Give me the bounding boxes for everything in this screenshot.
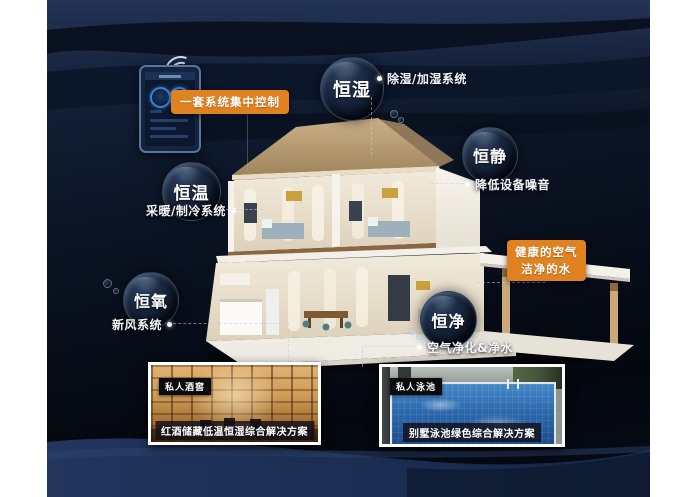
dashed-connector [168, 323, 288, 324]
dashed-connector [226, 209, 262, 210]
note-label: 降低设备噪音 [475, 176, 550, 193]
badge-line-1: 健康的空气 [515, 244, 578, 261]
note-dehumidify-system: 除湿/加湿系统 [377, 70, 467, 87]
decor-bubble-icon [408, 327, 416, 335]
control-dial-icon [150, 87, 171, 108]
connector-dot-icon [377, 76, 382, 81]
note-label: 新风系统 [112, 316, 162, 333]
dashed-connector [364, 346, 416, 347]
dashed-connector [477, 282, 545, 283]
connector-dot-icon [417, 345, 422, 350]
phone-connector-line [247, 113, 248, 171]
decor-bubble-icon [390, 110, 398, 118]
phone-screen-header [145, 72, 195, 80]
bubble-label: 恒静 [473, 143, 507, 167]
note-label: 采暖/制冷系统 [146, 202, 226, 219]
central-control-badge: 一套系统集中控制 [171, 90, 289, 114]
bubble-label: 恒温 [174, 179, 210, 204]
bubble-label: 恒氧 [134, 288, 168, 312]
pool-ladder-icon [507, 379, 519, 389]
note-fresh-air-system: 新风系统 [112, 316, 172, 333]
phone-screen-row [150, 119, 188, 122]
photo-caption: 别墅泳池绿色综合解决方案 [403, 423, 541, 442]
healthy-air-water-badge: 健康的空气 洁净的水 [507, 240, 586, 281]
decor-bubble-icon [113, 288, 119, 294]
photo-tag: 私人酒窖 [159, 378, 211, 395]
pool-side-wall [382, 367, 390, 444]
bubble-label: 恒湿 [333, 76, 371, 102]
dashed-connector [371, 97, 372, 155]
dashed-connector [288, 323, 289, 363]
bubble-label: 恒净 [431, 308, 465, 332]
house-illustration [186, 103, 646, 373]
decor-bubble-icon [398, 117, 404, 123]
note-label: 除湿/加湿系统 [387, 70, 467, 87]
phone-screen-row [150, 135, 188, 138]
dashed-connector [430, 183, 464, 184]
badge-line-2: 洁净的水 [515, 261, 578, 278]
dashed-connector [362, 346, 363, 367]
bubble-constant-humidity: 恒湿 [320, 57, 384, 121]
note-label: 空气净化&净水 [427, 339, 513, 356]
connector-dot-icon [465, 182, 470, 187]
photo-caption: 红酒储藏低温恒湿综合解决方案 [155, 421, 314, 440]
phone-screen-row [150, 110, 162, 113]
phone-screen-row [150, 127, 176, 130]
infographic-poster: 一套系统集中控制 恒湿 恒静 恒温 恒氧 恒净 除湿/加湿系统 降低设备噪音 采… [0, 0, 700, 497]
pool-card: 私人泳池 别墅泳池绿色综合解决方案 [379, 364, 565, 447]
note-heating-cooling-system: 采暖/制冷系统 [146, 202, 236, 219]
wine-cellar-card: 私人酒窖 红酒储藏低温恒湿综合解决方案 [148, 362, 321, 445]
note-noise-reduction: 降低设备噪音 [465, 176, 550, 193]
note-air-water-purification: 空气净化&净水 [417, 339, 513, 356]
photo-tag: 私人泳池 [390, 378, 442, 395]
bubble-constant-quiet: 恒静 [462, 127, 518, 183]
decor-bubble-icon [103, 279, 112, 288]
